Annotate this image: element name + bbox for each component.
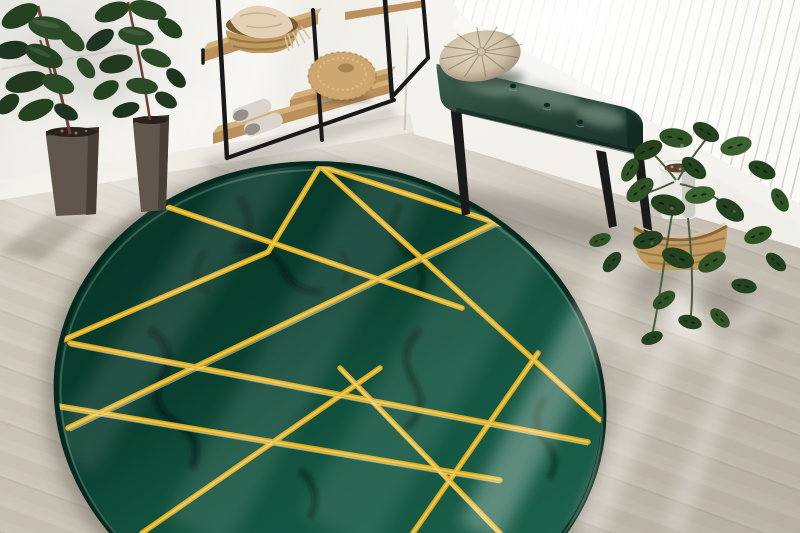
wicker-basket-with-throw	[226, 6, 310, 53]
scene-artwork	[0, 0, 800, 533]
jute-pouf	[308, 52, 376, 104]
interior-photo-scene	[0, 0, 800, 533]
rubber-plant-leaves	[0, 0, 99, 126]
